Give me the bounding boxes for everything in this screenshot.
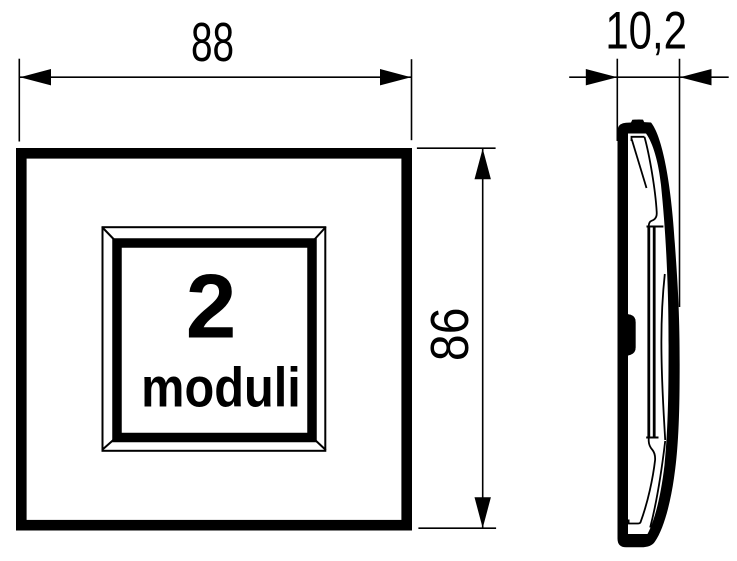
svg-text:moduli: moduli (141, 356, 301, 419)
svg-text:88: 88 (191, 13, 234, 74)
svg-text:2: 2 (186, 256, 237, 357)
svg-text:86: 86 (420, 308, 480, 362)
svg-text:10,2: 10,2 (605, 2, 687, 61)
